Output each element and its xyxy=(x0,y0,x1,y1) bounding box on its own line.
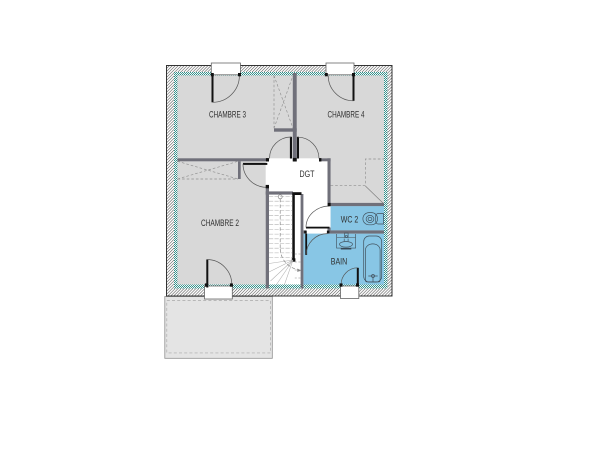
svg-text:DGT: DGT xyxy=(300,169,315,179)
svg-text:WC 2: WC 2 xyxy=(341,214,359,224)
svg-text:BAIN: BAIN xyxy=(331,257,348,267)
svg-text:CHAMBRE 4: CHAMBRE 4 xyxy=(328,109,365,119)
svg-text:CHAMBRE 2: CHAMBRE 2 xyxy=(201,218,239,228)
svg-text:CHAMBRE 3: CHAMBRE 3 xyxy=(209,109,246,119)
